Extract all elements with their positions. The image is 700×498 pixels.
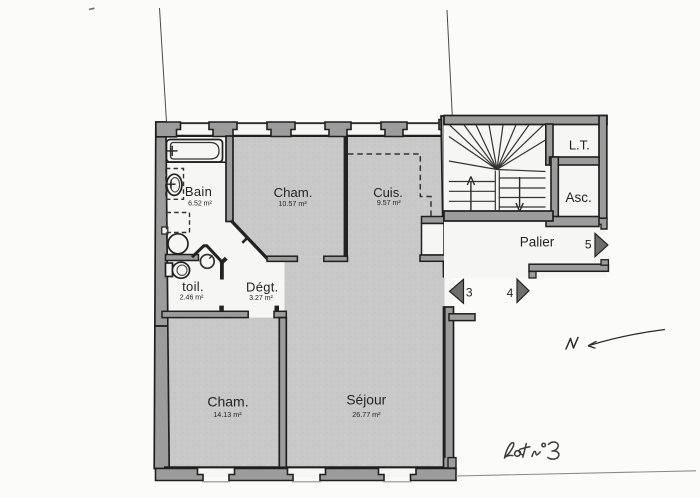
- svg-text:3.27 m²: 3.27 m²: [249, 295, 273, 302]
- svg-text:5: 5: [585, 237, 592, 251]
- svg-text:Bain: Bain: [185, 184, 212, 199]
- svg-text:Dégt.: Dégt.: [246, 280, 279, 295]
- svg-text:10.57 m²: 10.57 m²: [278, 199, 307, 208]
- svg-text:Cham.: Cham.: [207, 394, 248, 410]
- svg-text:L.T.: L.T.: [569, 138, 590, 153]
- svg-text:Asc.: Asc.: [565, 190, 591, 205]
- svg-text:9.57 m²: 9.57 m²: [377, 200, 401, 207]
- svg-text:26.77 m²: 26.77 m²: [352, 410, 381, 419]
- svg-text:14.13 m²: 14.13 m²: [213, 410, 242, 419]
- svg-text:toil.: toil.: [182, 279, 204, 294]
- svg-text:2.46 m²: 2.46 m²: [180, 295, 204, 302]
- svg-text:4: 4: [507, 286, 514, 300]
- svg-text:3: 3: [466, 286, 473, 300]
- svg-text:6.52 m²: 6.52 m²: [188, 201, 212, 208]
- svg-text:Séjour: Séjour: [346, 393, 386, 408]
- svg-text:Cham.: Cham.: [274, 185, 313, 200]
- svg-text:Palier: Palier: [520, 234, 555, 249]
- svg-text:Cuis.: Cuis.: [373, 185, 403, 200]
